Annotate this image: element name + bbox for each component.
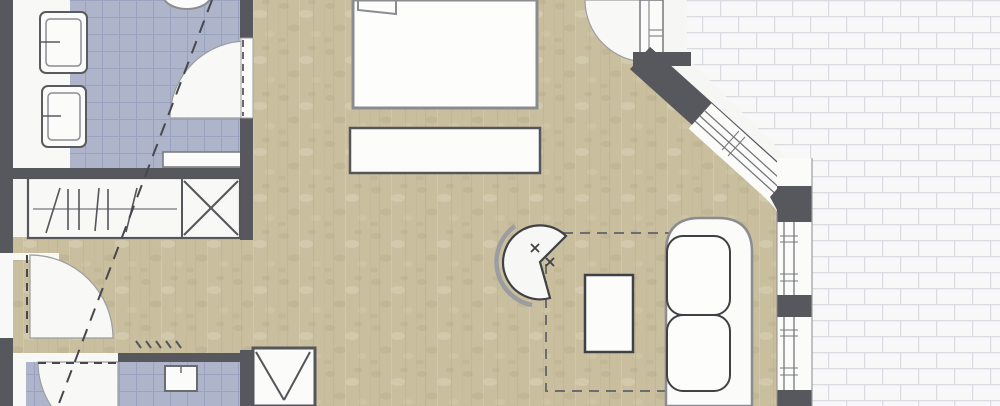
sofa-cushion-top	[667, 236, 730, 315]
cross-braced-cabinet	[253, 348, 315, 406]
entry-door-opening	[0, 253, 13, 338]
two-seat-sofa	[666, 218, 752, 406]
right-wall-seg-top	[777, 186, 812, 222]
sink-lower	[42, 86, 86, 147]
wall-bathroom-right-lower	[240, 118, 253, 240]
sofa-cushion-bottom	[667, 315, 730, 391]
floor-plan-page	[0, 0, 1000, 406]
wall-left-lower	[0, 338, 13, 406]
bathtub-edge	[163, 152, 248, 167]
sink	[165, 366, 197, 391]
wall-left-upper	[0, 0, 13, 253]
double-bed	[353, 0, 537, 108]
top-door-frame	[640, 0, 663, 53]
bathroom-bottom-door-swing	[38, 362, 118, 406]
bathroom-top-door-leaf	[241, 38, 253, 118]
wall-bathroom-right-upper	[240, 0, 253, 38]
low-dresser-bench	[350, 128, 540, 173]
right-wall-seg-bottom	[777, 390, 812, 406]
right-facade	[777, 158, 812, 406]
bathroom-bottom-threshold	[13, 353, 118, 362]
wall-cabinet-left	[240, 350, 253, 406]
floor-plan-canvas	[0, 0, 1000, 406]
coffee-table	[585, 275, 633, 352]
sink-upper	[40, 12, 87, 73]
right-wall-seg-mid	[777, 295, 812, 317]
wall-hallway-bottom	[118, 353, 252, 362]
room-bathroom-top	[13, 0, 248, 168]
